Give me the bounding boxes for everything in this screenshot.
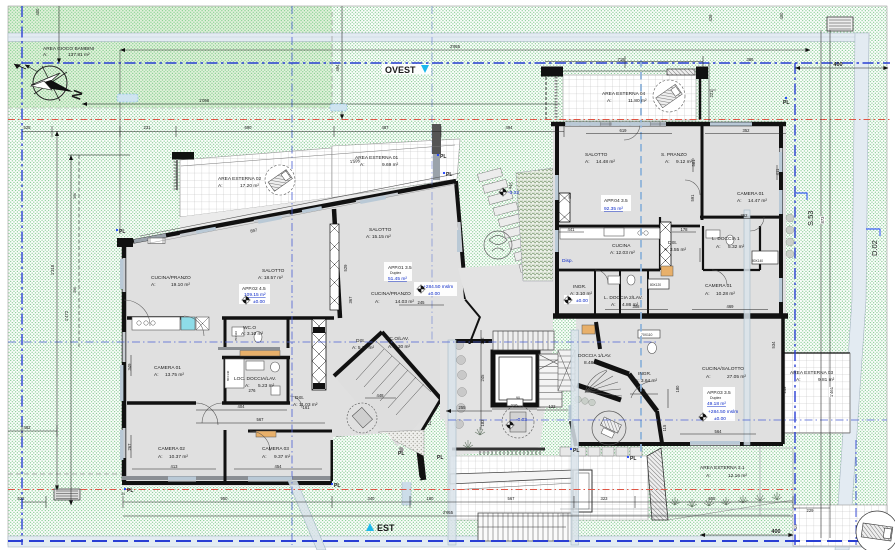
svg-text:454: 454	[275, 464, 283, 469]
svg-text:AREA ESTERNA 02: AREA ESTERNA 02	[218, 176, 262, 182]
svg-text:352: 352	[743, 128, 751, 133]
svg-text:567: 567	[257, 417, 265, 422]
svg-text:14.48 m²: 14.48 m²	[596, 159, 615, 165]
svg-text:404: 404	[238, 404, 246, 409]
svg-text:A:: A:	[218, 183, 223, 189]
svg-text:10.37 m²: 10.37 m²	[169, 454, 188, 460]
svg-text:494: 494	[335, 64, 340, 72]
svg-text:OVEST: OVEST	[385, 65, 416, 75]
svg-text:183: 183	[480, 419, 485, 427]
svg-text:AREA ESTERNA 01: AREA ESTERNA 01	[355, 155, 399, 161]
svg-text:441: 441	[568, 227, 576, 232]
svg-text:469: 469	[727, 304, 735, 309]
svg-text:5.32 m²: 5.32 m²	[728, 244, 745, 250]
svg-text:CUCINA/SALOTTO: CUCINA/SALOTTO	[702, 366, 744, 372]
svg-text:400: 400	[779, 12, 784, 20]
svg-text:349: 349	[127, 363, 132, 371]
svg-text:INGR.: INGR.	[638, 371, 651, 377]
svg-text:A: 12.03 m²: A: 12.03 m²	[610, 250, 635, 256]
svg-text:123: 123	[427, 418, 432, 426]
svg-text:SALOTTO: SALOTTO	[585, 152, 608, 158]
svg-text:873: 873	[820, 216, 825, 224]
svg-text:CUCINA/PRANZO: CUCINA/PRANZO	[151, 275, 191, 281]
svg-text:A: 11.03 m²: A: 11.03 m²	[293, 402, 318, 408]
svg-text:690: 690	[245, 125, 253, 130]
svg-text:396: 396	[73, 193, 77, 199]
svg-text:462: 462	[24, 425, 32, 430]
svg-text:±0.00: ±0.00	[253, 299, 265, 305]
svg-text:428: 428	[708, 14, 713, 22]
svg-text:205: 205	[639, 388, 647, 393]
svg-text:PL: PL	[119, 229, 125, 235]
svg-text:WC.O/LAV.: WC.O/LAV.	[385, 336, 409, 342]
svg-text:267: 267	[127, 443, 132, 451]
svg-text:8.48 m²: 8.48 m²	[584, 360, 601, 366]
svg-text:367: 367	[348, 296, 353, 304]
svg-text:S. PRANZO: S. PRANZO	[661, 152, 687, 158]
svg-text:PL: PL	[446, 172, 452, 178]
svg-text:A:: A:	[796, 377, 801, 383]
svg-text:AREA ESTERNA 3.1: AREA ESTERNA 3.1	[700, 465, 745, 471]
svg-text:567: 567	[508, 496, 516, 501]
svg-text:14.03 m²: 14.03 m²	[395, 299, 414, 305]
svg-text:A:: A:	[706, 473, 711, 479]
svg-text:PL: PL	[783, 100, 789, 106]
svg-text:AREA ESTERNA 03: AREA ESTERNA 03	[790, 370, 834, 376]
svg-text:2'955: 2'955	[443, 510, 454, 515]
svg-text:655: 655	[709, 496, 717, 501]
svg-text:CAMERA 03: CAMERA 03	[262, 446, 289, 452]
svg-text:494: 494	[506, 125, 514, 130]
svg-text:CAMERA 01: CAMERA 01	[154, 365, 181, 371]
svg-text:PL: PL	[437, 455, 443, 461]
svg-text:DIS.: DIS.	[295, 395, 304, 401]
svg-text:A:: A:	[705, 291, 710, 297]
svg-text:27.05 m²: 27.05 m²	[727, 374, 746, 380]
svg-text:90: 90	[516, 396, 520, 400]
svg-text:PL: PL	[440, 154, 446, 160]
svg-text:A:: A:	[585, 159, 590, 165]
svg-text:487: 487	[382, 125, 390, 130]
svg-text:210: 210	[511, 403, 519, 408]
svg-text:APP.04 3.5: APP.04 3.5	[604, 198, 628, 204]
svg-text:AREA GIOCO BAMBINI: AREA GIOCO BAMBINI	[43, 46, 94, 52]
svg-text:115: 115	[662, 424, 667, 431]
svg-text:1'461: 1'461	[829, 386, 834, 397]
svg-text:DIS.: DIS.	[668, 240, 677, 246]
svg-text:SALOTTO: SALOTTO	[369, 227, 392, 233]
svg-text:Duplex: Duplex	[710, 396, 721, 400]
svg-text:70X110: 70X110	[234, 331, 238, 341]
svg-text:529: 529	[343, 264, 348, 272]
svg-text:A:: A:	[360, 162, 365, 168]
svg-text:49.18 m²: 49.18 m²	[707, 401, 726, 407]
svg-text:-0.03: -0.03	[508, 190, 519, 196]
svg-text:S.53: S.53	[806, 211, 815, 226]
svg-text:80X140: 80X140	[752, 259, 763, 263]
svg-text:A:: A:	[43, 52, 48, 58]
svg-text:51.45 m²: 51.45 m²	[388, 276, 407, 282]
svg-text:221: 221	[709, 90, 714, 98]
svg-text:4.86 m²: 4.86 m²	[622, 302, 639, 308]
svg-text:9.37 m²: 9.37 m²	[274, 454, 291, 460]
svg-text:137.81 m²: 137.81 m²	[68, 52, 90, 58]
svg-text:Disp.: Disp.	[562, 258, 573, 264]
svg-text:A:: A:	[154, 372, 159, 378]
svg-text:400: 400	[35, 8, 40, 16]
svg-text:A: 15.15 m²: A: 15.15 m²	[366, 234, 391, 240]
svg-text:PL: PL	[334, 483, 340, 489]
svg-text:340: 340	[368, 496, 376, 501]
svg-text:219: 219	[782, 386, 787, 394]
svg-text:±0.00: ±0.00	[428, 291, 440, 297]
svg-text:A:: A:	[665, 159, 670, 165]
svg-text:A:: A:	[262, 454, 267, 460]
svg-text:400: 400	[771, 529, 780, 535]
svg-text:413: 413	[171, 464, 179, 469]
svg-text:12.16 m²: 12.16 m²	[728, 473, 747, 479]
svg-text:591: 591	[690, 194, 695, 202]
svg-text:APP.02 4.5: APP.02 4.5	[242, 286, 266, 292]
svg-text:396: 396	[73, 287, 77, 293]
svg-text:229: 229	[807, 508, 815, 513]
svg-text:11.80 m²: 11.80 m²	[628, 98, 647, 104]
svg-text:619: 619	[620, 128, 628, 133]
svg-text:19.10 m²: 19.10 m²	[171, 282, 190, 288]
svg-text:A:: A:	[375, 299, 380, 305]
svg-text:245: 245	[418, 300, 426, 305]
svg-text:±0.00: ±0.00	[576, 298, 588, 304]
svg-text:A:: A:	[611, 302, 616, 308]
svg-text:+284.50 mslm: +284.50 mslm	[708, 409, 738, 415]
svg-text:Duplex: Duplex	[390, 271, 401, 275]
svg-text:+284.50 mslm: +284.50 mslm	[423, 284, 453, 290]
svg-text:276: 276	[249, 388, 257, 393]
svg-text:SALOTTO: SALOTTO	[262, 268, 285, 274]
svg-text:LOC. DOCCIA/LAV.: LOC. DOCCIA/LAV.	[234, 376, 276, 382]
svg-text:381: 381	[568, 193, 572, 199]
svg-text:AREA ESTERNA 04: AREA ESTERNA 04	[602, 91, 646, 97]
svg-text:A:: A:	[706, 374, 711, 380]
svg-text:A:: A:	[607, 98, 612, 104]
svg-text:564: 564	[715, 429, 723, 434]
svg-text:A: 3.64 m²: A: 3.64 m²	[635, 378, 658, 384]
svg-text:120: 120	[794, 524, 798, 530]
svg-text:CUCINA: CUCINA	[612, 243, 631, 249]
svg-text:A: 3.55 m²: A: 3.55 m²	[664, 247, 687, 253]
svg-text:352: 352	[741, 213, 749, 218]
svg-text:34: 34	[121, 492, 125, 496]
svg-text:INGR.: INGR.	[573, 284, 586, 290]
svg-text:122: 122	[549, 404, 557, 409]
svg-text:A: 18.57 m²: A: 18.57 m²	[258, 275, 283, 281]
svg-text:13.75 m²: 13.75 m²	[165, 372, 184, 378]
svg-text:400: 400	[833, 62, 842, 68]
svg-text:WC.O: WC.O	[243, 325, 256, 331]
svg-text:±0.00: ±0.00	[714, 416, 726, 422]
svg-text:9.81 m²: 9.81 m²	[818, 377, 835, 383]
svg-text:A:: A:	[151, 282, 156, 288]
svg-text:14.47 m²: 14.47 m²	[748, 198, 767, 204]
svg-text:534: 534	[771, 341, 776, 349]
svg-text:448: 448	[377, 393, 385, 398]
svg-text:A: 3.10 m²: A: 3.10 m²	[241, 331, 264, 337]
svg-text:1'096: 1'096	[199, 98, 210, 103]
svg-text:718: 718	[618, 57, 626, 62]
svg-text:80X120: 80X120	[650, 283, 661, 287]
svg-text:-0.03: -0.03	[516, 417, 527, 423]
svg-text:PL: PL	[127, 488, 133, 494]
svg-text:PL: PL	[398, 451, 404, 457]
svg-text:1'318: 1'318	[50, 264, 55, 275]
svg-text:PL: PL	[573, 448, 579, 454]
svg-text:L. DOCCIA 1: L. DOCCIA 1	[712, 236, 740, 242]
svg-text:323: 323	[601, 496, 609, 501]
svg-text:EST: EST	[377, 523, 395, 533]
svg-text:180: 180	[427, 496, 435, 501]
svg-text:DOCCIA 1/LAV.: DOCCIA 1/LAV.	[578, 353, 611, 359]
svg-text:CAMERA 01: CAMERA 01	[737, 191, 764, 197]
svg-text:950: 950	[221, 496, 229, 501]
svg-text:9.69 m²: 9.69 m²	[382, 162, 399, 168]
svg-text:92.35 m²: 92.35 m²	[604, 206, 623, 212]
svg-text:A:: A:	[158, 454, 163, 460]
svg-text:178: 178	[681, 227, 689, 232]
svg-text:70X110: 70X110	[641, 333, 653, 337]
svg-text:CAMERA 01: CAMERA 01	[705, 283, 732, 289]
svg-text:386: 386	[747, 57, 755, 62]
svg-text:522: 522	[18, 496, 26, 501]
svg-text:1'472: 1'472	[64, 310, 69, 321]
svg-text:A:: A:	[716, 244, 721, 250]
svg-text:122: 122	[480, 337, 485, 345]
svg-text:DIS.: DIS.	[356, 338, 365, 344]
svg-text:A: 5.34 m²: A: 5.34 m²	[352, 345, 375, 351]
svg-text:PL: PL	[630, 456, 636, 462]
svg-text:5.23 m²: 5.23 m²	[258, 383, 275, 389]
svg-text:245: 245	[480, 374, 485, 382]
svg-text:231: 231	[144, 125, 152, 130]
svg-text:CUCINA/PRANZO: CUCINA/PRANZO	[371, 291, 411, 297]
svg-text:17.20 m²: 17.20 m²	[240, 183, 259, 189]
svg-text:CAMERA 02: CAMERA 02	[158, 446, 185, 452]
svg-text:525: 525	[24, 125, 32, 130]
svg-text:A:: A:	[245, 383, 250, 389]
svg-text:9.12 m²: 9.12 m²	[676, 159, 693, 165]
svg-text:A: 4.30 m²: A: 4.30 m²	[388, 344, 411, 350]
svg-text:180: 180	[675, 385, 680, 393]
svg-text:A:: A:	[737, 198, 742, 204]
svg-text:10.28 m²: 10.28 m²	[716, 291, 735, 297]
svg-text:2'955: 2'955	[450, 44, 461, 49]
svg-text:L. DOCCIA 2/LAV.: L. DOCCIA 2/LAV.	[604, 295, 643, 301]
svg-text:255: 255	[459, 405, 467, 410]
svg-text:D.02: D.02	[870, 240, 879, 256]
